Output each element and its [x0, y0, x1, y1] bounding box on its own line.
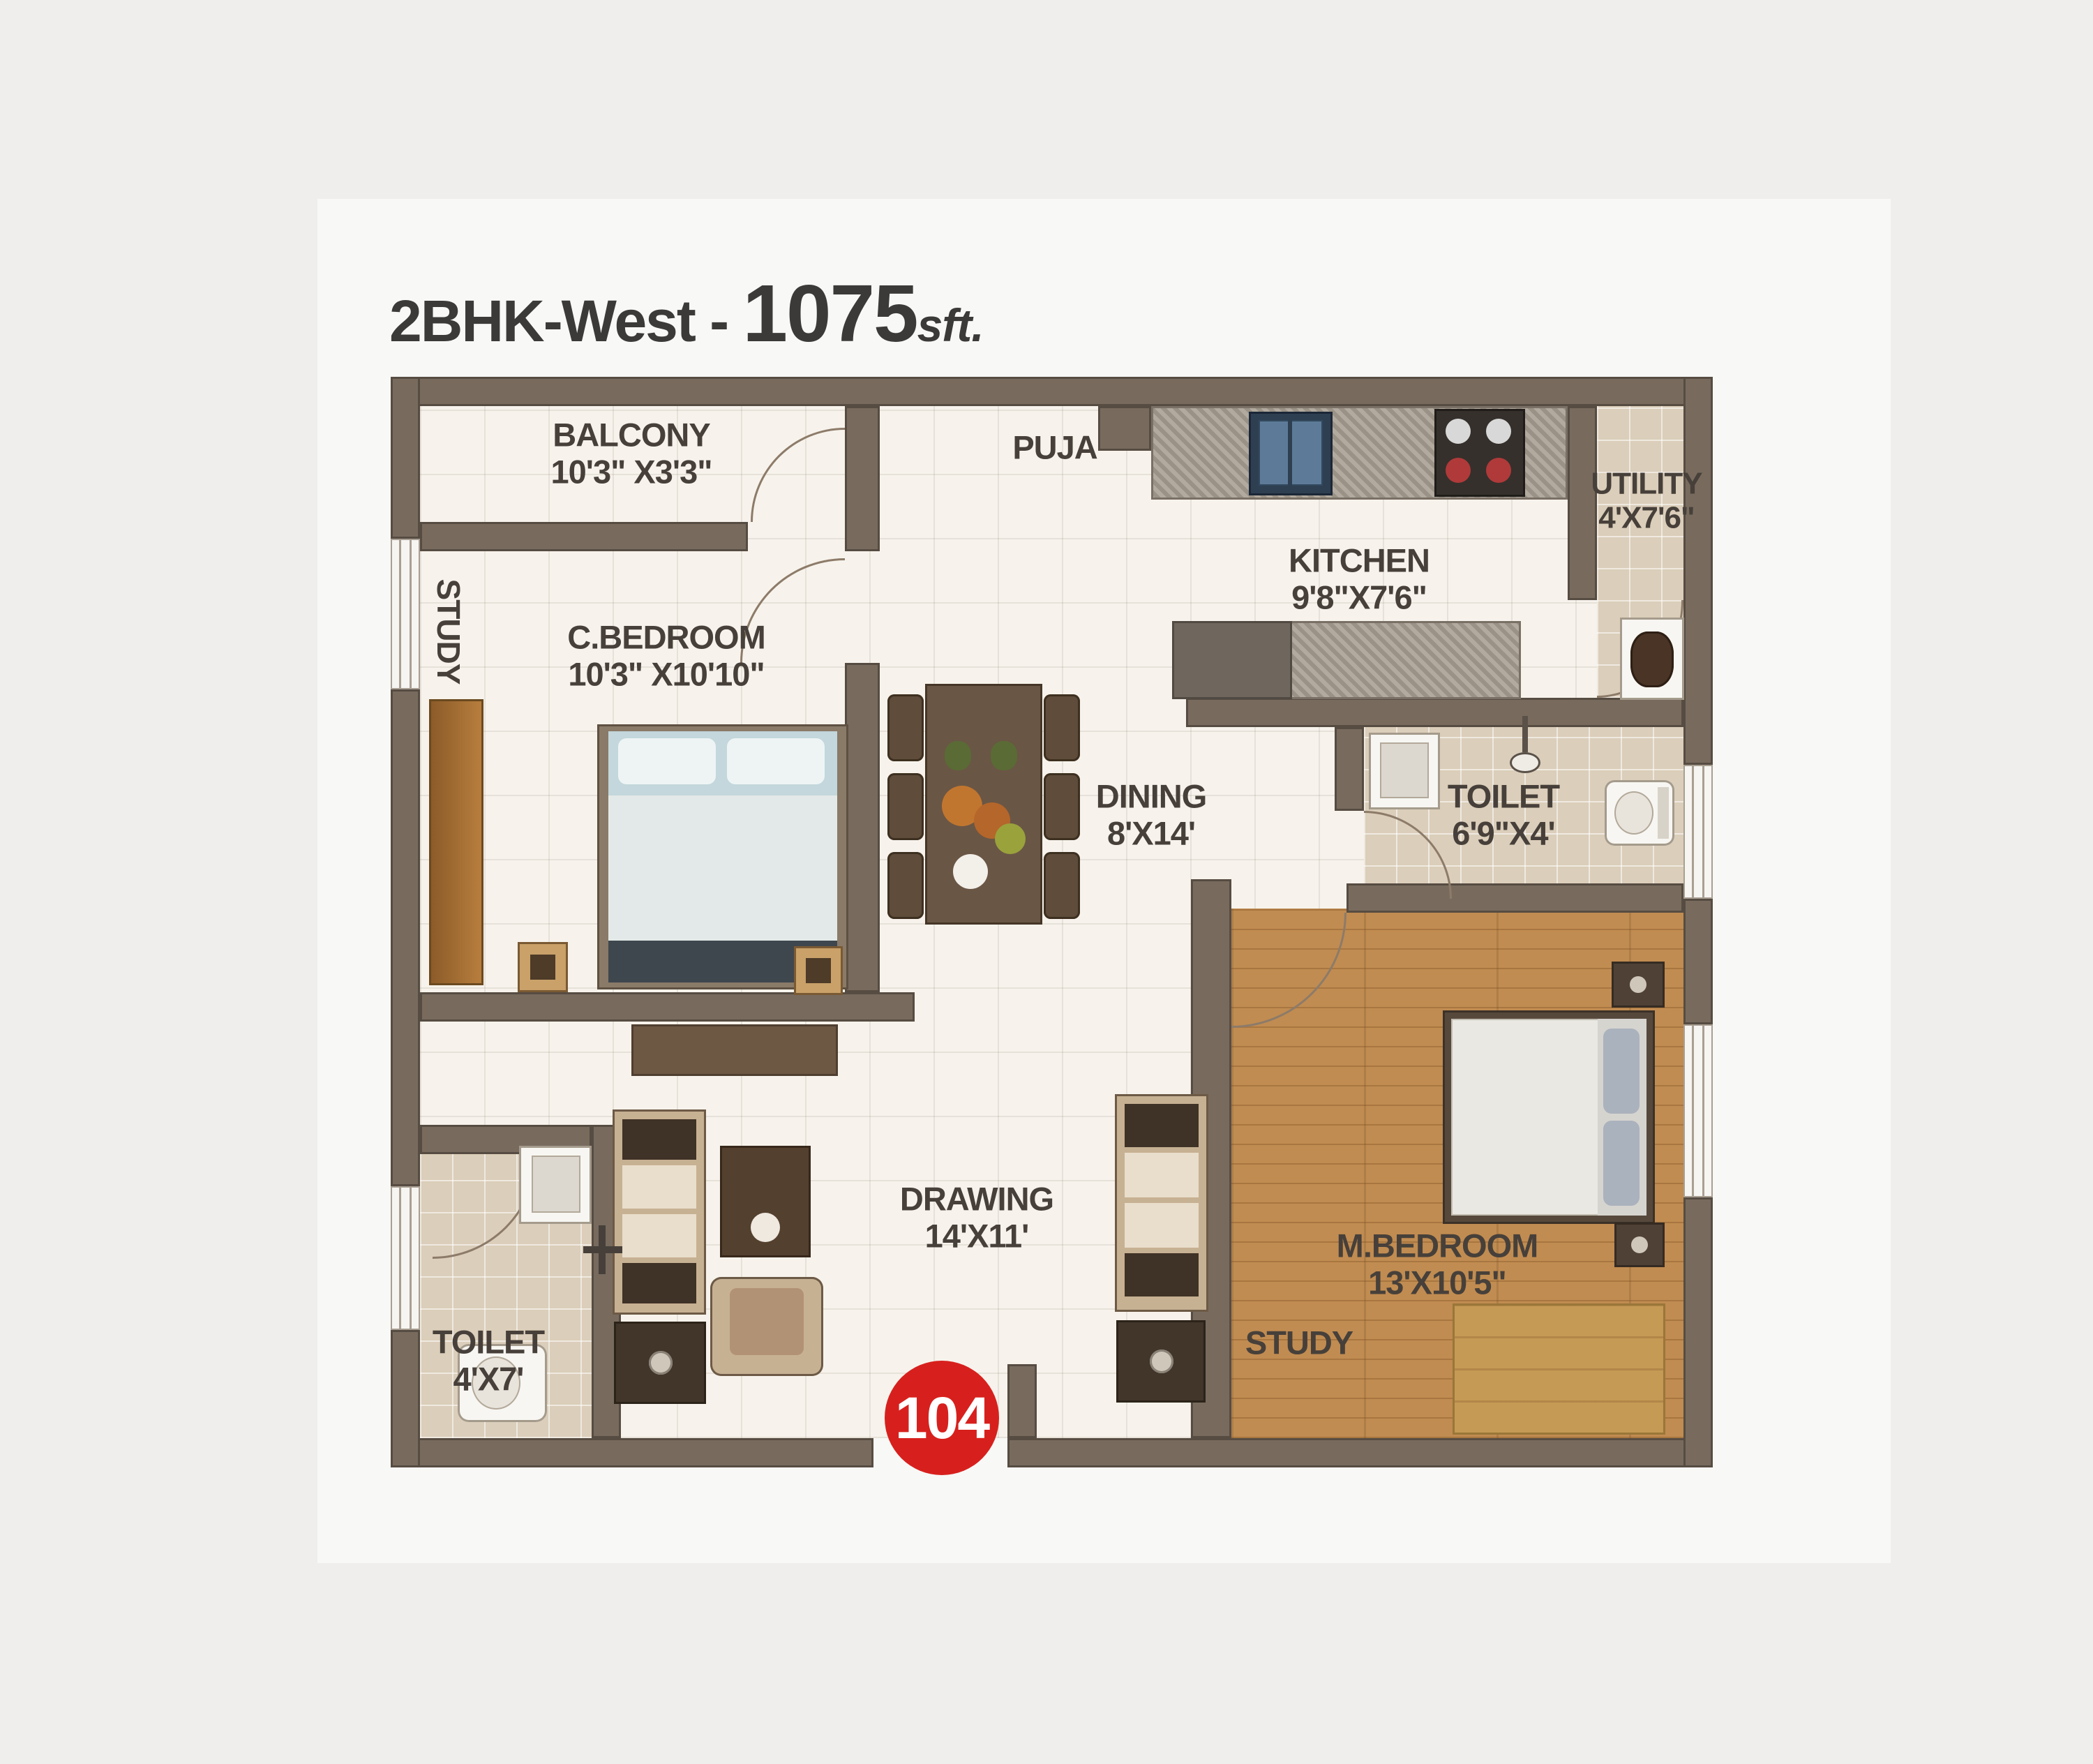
label-study-nook: STUDY — [430, 579, 467, 685]
outer-wall-bottom-left — [391, 1438, 873, 1467]
armchair — [710, 1277, 823, 1376]
attached-toilet-window — [1683, 765, 1713, 899]
nightstand — [1612, 962, 1665, 1008]
dining-chair — [887, 852, 924, 919]
label-dining: DINING 8'X14' — [1096, 778, 1207, 851]
wardrobe-icon — [1453, 1303, 1665, 1435]
label-m-bedroom: M.BEDROOM 13'X10'5" — [1337, 1227, 1538, 1301]
sofa-icon — [613, 1109, 706, 1315]
dining-chair — [887, 773, 924, 840]
study-window — [391, 539, 420, 689]
side-table — [1116, 1320, 1206, 1403]
kitchen-cabinet-block — [1172, 621, 1292, 699]
outer-wall-left-3 — [391, 1330, 420, 1467]
coffee-table — [720, 1146, 811, 1257]
stove-burners-icon — [1434, 409, 1525, 497]
nightstand — [518, 942, 568, 992]
label-c-bedroom: C.BEDROOM 10'3" X10'10" — [567, 619, 765, 692]
door-swing-marker — [599, 1225, 606, 1274]
sink-icon — [1249, 412, 1333, 495]
outer-wall-right-3 — [1683, 1197, 1713, 1467]
tv-unit — [614, 1322, 706, 1404]
outer-wall-right-1 — [1683, 377, 1713, 765]
common-toilet-window — [391, 1186, 420, 1330]
entrance-stub-wall — [1007, 1364, 1037, 1438]
outer-wall-top — [391, 377, 1713, 406]
outer-wall-left-2 — [391, 689, 420, 1186]
label-drawing: DRAWING 14'X11' — [900, 1181, 1053, 1254]
nightstand — [1614, 1223, 1665, 1267]
kitchen-bottom-wall — [1186, 698, 1683, 727]
floor-plan: 104 BALCONY 10'3" X3'3" STUDY C.BEDROOM … — [0, 0, 2093, 1764]
dining-table-icon — [925, 684, 1042, 925]
label-toilet-common: TOILET 4'X7' — [433, 1324, 544, 1397]
label-utility: UTILITY 4'X7'6" — [1591, 467, 1702, 536]
dining-chair — [1044, 694, 1080, 761]
bed-icon — [1443, 1010, 1655, 1224]
wash-basin-icon — [1369, 733, 1440, 809]
outer-wall-bottom-right — [1007, 1438, 1713, 1467]
dining-chair — [1044, 773, 1080, 840]
dresser — [631, 1024, 838, 1076]
outer-wall-left-1 — [391, 377, 420, 539]
balcony-right-wall — [845, 406, 880, 551]
attached-toilet-left-wall — [1335, 727, 1364, 811]
c-bedroom-right-wall — [845, 663, 880, 992]
wardrobe-icon — [429, 699, 483, 985]
label-kitchen: KITCHEN 9'8"X7'6" — [1289, 542, 1430, 615]
unit-number-badge: 104 — [885, 1361, 999, 1475]
nightstand — [794, 946, 843, 995]
balcony-bottom-wall — [420, 522, 748, 551]
toilet-seat-icon — [1605, 780, 1674, 846]
wash-basin-icon — [1620, 618, 1684, 700]
label-puja: PUJA — [1012, 430, 1097, 467]
label-toilet-attached: TOILET 6'9"X4' — [1448, 778, 1559, 851]
sofa-icon — [1115, 1094, 1208, 1312]
dining-chair — [1044, 852, 1080, 919]
dining-chair — [887, 694, 924, 761]
label-study-corner: STUDY — [1245, 1325, 1353, 1362]
wash-basin-icon — [519, 1146, 592, 1224]
label-balcony: BALCONY 10'3" X3'3" — [550, 417, 712, 490]
c-bedroom-bottom-wall — [420, 992, 915, 1022]
kitchen-stub-wall — [1098, 406, 1151, 451]
outer-wall-right-2 — [1683, 899, 1713, 1024]
master-bedroom-window — [1683, 1024, 1713, 1197]
